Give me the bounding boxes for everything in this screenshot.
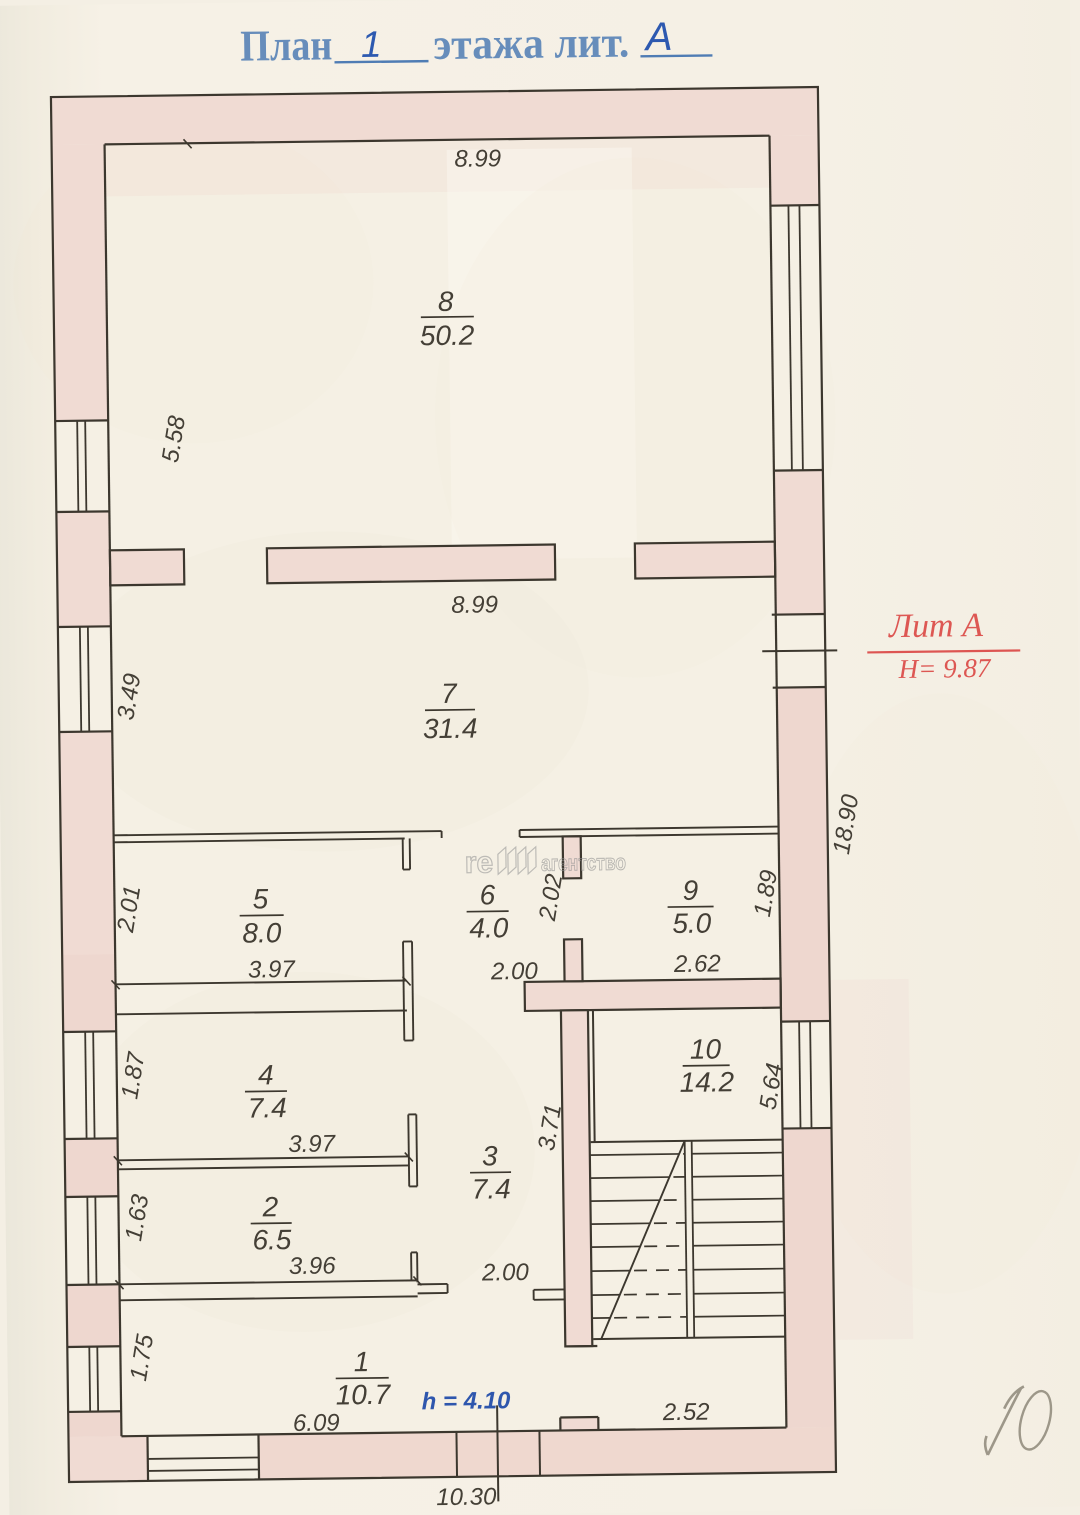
svg-text:re: re	[465, 846, 494, 879]
svg-text:10.7: 10.7	[335, 1379, 391, 1411]
svg-text:14.2: 14.2	[679, 1066, 734, 1098]
svg-text:5: 5	[252, 883, 268, 914]
svg-text:8.0: 8.0	[242, 917, 282, 949]
svg-text:2.00: 2.00	[481, 1259, 530, 1287]
svg-text:h = 4.10: h = 4.10	[422, 1387, 512, 1415]
svg-text:агентство: агентство	[541, 850, 626, 876]
svg-text:Лит А: Лит А	[888, 607, 984, 645]
svg-text:8.99: 8.99	[451, 591, 498, 619]
svg-text:1: 1	[354, 1346, 370, 1377]
svg-text:50.2: 50.2	[420, 320, 475, 352]
svg-text:2.00: 2.00	[490, 958, 539, 986]
svg-text:3.97: 3.97	[288, 1130, 337, 1158]
svg-text:2.52: 2.52	[662, 1399, 710, 1427]
svg-text:7.4: 7.4	[472, 1173, 511, 1205]
svg-text:6.09: 6.09	[293, 1409, 340, 1437]
svg-text:31.4: 31.4	[423, 713, 478, 745]
svg-text:2: 2	[261, 1191, 278, 1222]
svg-text:3: 3	[482, 1140, 498, 1171]
svg-text:3.97: 3.97	[248, 956, 297, 984]
svg-text:А: А	[644, 15, 673, 59]
svg-text:4: 4	[258, 1059, 274, 1090]
svg-text:План: План	[240, 20, 333, 70]
svg-text:7.4: 7.4	[248, 1092, 287, 1124]
svg-text:2.62: 2.62	[673, 950, 721, 978]
svg-text:10: 10	[690, 1033, 722, 1064]
svg-text:6.5: 6.5	[252, 1224, 292, 1256]
svg-text:8.99: 8.99	[454, 145, 501, 173]
svg-text:4.0: 4.0	[469, 912, 509, 944]
svg-text:8: 8	[438, 286, 454, 317]
svg-text:7: 7	[441, 678, 458, 709]
svg-text:3.96: 3.96	[289, 1252, 337, 1280]
svg-text:1: 1	[361, 24, 382, 65]
svg-text:6: 6	[479, 879, 495, 910]
svg-text:10.30: 10.30	[436, 1483, 497, 1511]
svg-text:этажа лит.: этажа лит.	[433, 18, 630, 70]
svg-text:5.0: 5.0	[672, 907, 712, 939]
svg-text:9: 9	[682, 875, 698, 906]
svg-text:Н= 9.87: Н= 9.87	[897, 653, 992, 684]
